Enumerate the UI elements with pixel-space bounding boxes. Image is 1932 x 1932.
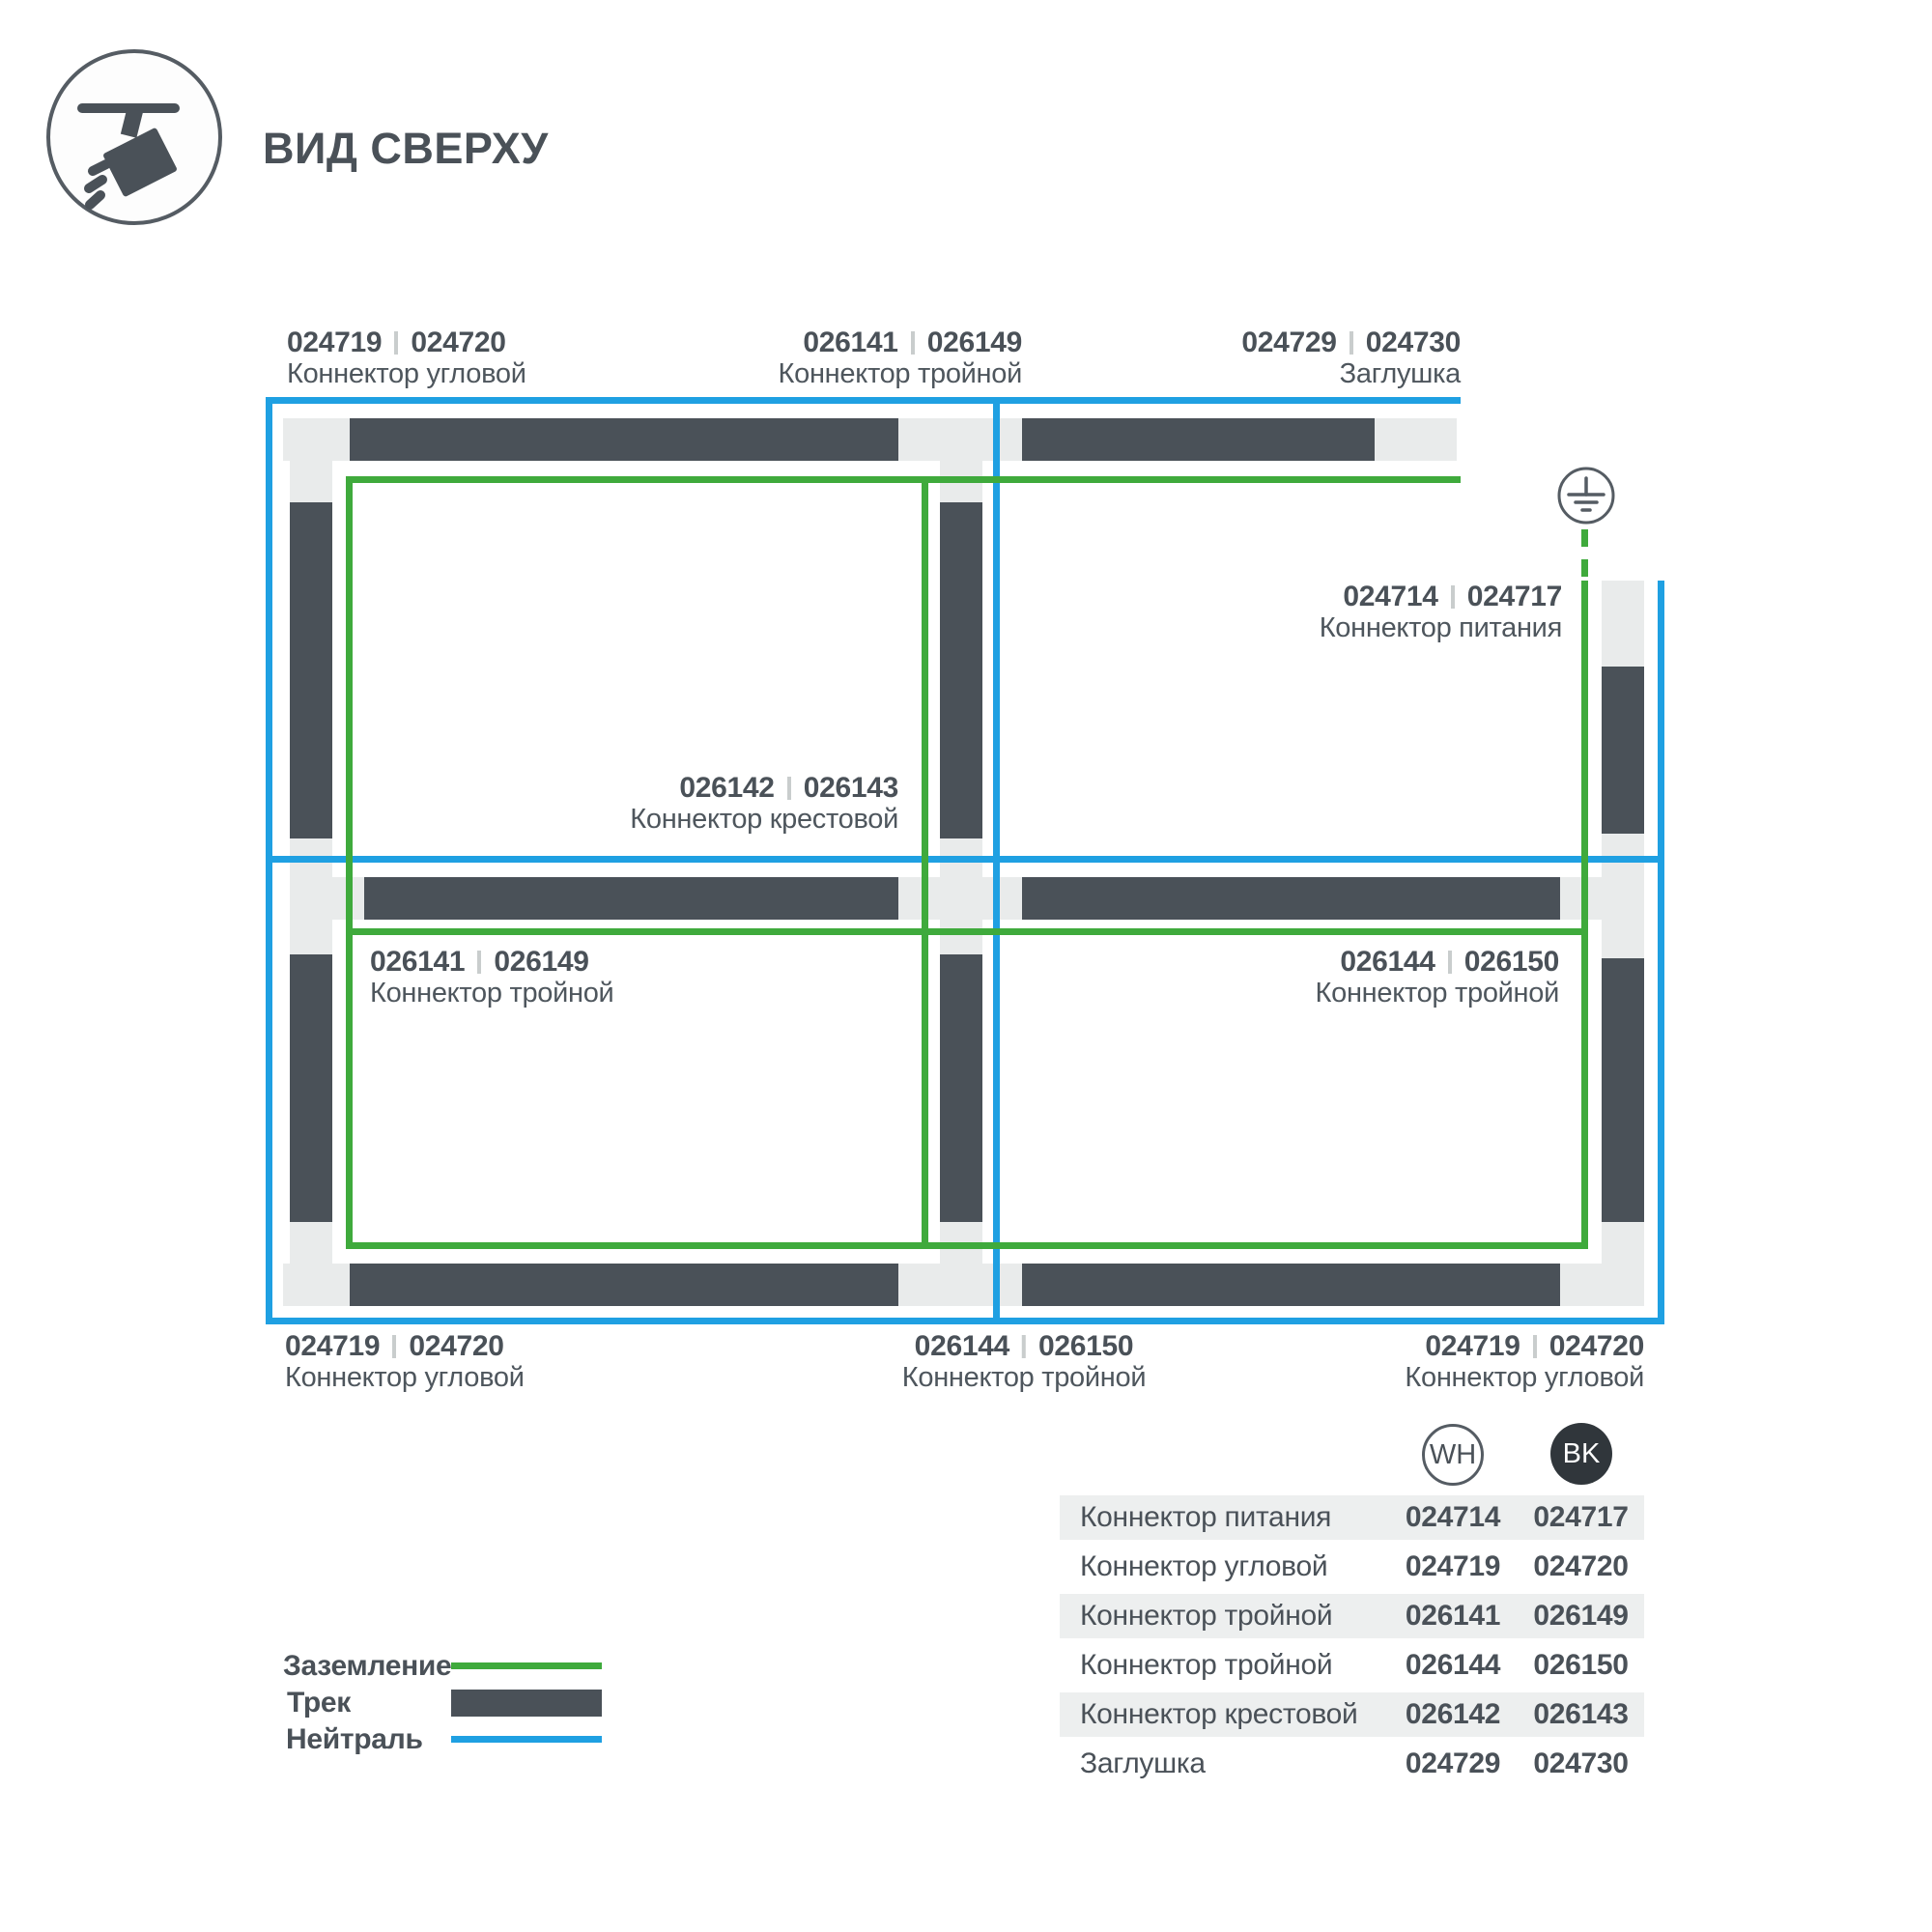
ground-line [922,476,928,1249]
page-title: ВИД СВЕРХУ [263,124,549,174]
neutral-line [993,397,1000,1324]
neutral-line [266,397,272,1324]
diagram-label-corner-top-left: 024719024720 Коннектор угловой [287,327,526,390]
table-row: Коннектор угловой024719024720 [1060,1545,1644,1589]
legend-item-neutral: Нейтраль [286,1723,423,1756]
neutral-line [266,1318,1664,1324]
diagram-label-cross: 026142026143 Коннектор крестовой [630,772,898,836]
end-cap-top-right [1375,418,1457,461]
diagram-label-tee-bottom: 026144026150 Коннектор тройной [902,1330,1146,1394]
tee-connector-left [290,877,364,920]
catalog-page: { "header": { "title": "ВИД СВЕРХУ", "ic… [0,0,1932,1932]
ground-line [346,476,353,1249]
color-badge-bk: BK [1550,1423,1612,1485]
track-spotlight-icon [50,53,218,221]
table-row: Коннектор крестовой026142026143 [1060,1692,1644,1737]
label-separator [477,951,481,974]
ground-line-dashed [1581,529,1588,582]
label-separator [394,331,398,355]
label-separator [392,1335,396,1358]
color-badge-wh: WH [1422,1424,1484,1486]
label-separator [911,331,915,355]
ground-line [346,928,1588,935]
tee-connector-right [1560,877,1644,920]
tee-connector-bottom [940,1222,982,1306]
track-top [290,418,1457,461]
neutral-line [266,397,1461,404]
ground-line-swatch [451,1662,602,1669]
label-separator [1448,951,1452,974]
label-separator [787,777,791,800]
diagram-label-corner-bottom-left: 024719024720 Коннектор угловой [285,1330,525,1394]
track-bar-swatch [451,1690,602,1717]
legend-item-track: Трек [287,1687,351,1719]
neutral-line [266,856,1664,863]
ground-line [346,476,1461,483]
label-separator [1350,331,1353,355]
label-separator [1451,585,1455,609]
header-icon-circle [46,49,222,225]
table-row: Коннектор тройной026144026150 [1060,1643,1644,1688]
diagram-label-tee-left: 026141026149 Коннектор тройной [370,946,613,1009]
table-row: Коннектор питания024714024717 [1060,1495,1644,1540]
corner-connector-bottom-left [290,1222,332,1306]
diagram-label-corner-bottom-right: 024719024720 Коннектор угловой [1405,1330,1644,1394]
corner-connector-top-left [290,418,332,502]
earth-ground-icon [1556,466,1616,530]
neutral-line [1658,581,1664,1324]
power-feed-connector [1602,581,1644,667]
label-separator [1533,1335,1537,1358]
ground-line [346,1242,1588,1249]
label-separator [1022,1335,1026,1358]
legend-item-ground: Заземление [283,1650,451,1683]
diagram-label-tee-top: 026141026149 Коннектор тройной [779,327,1022,390]
corner-connector-bottom-right [1602,1222,1644,1306]
tee-connector-top [940,418,982,502]
table-row: Коннектор тройной026141026149 [1060,1594,1644,1638]
table-row: Заглушка024729024730 [1060,1742,1644,1786]
diagram-label-endcap: 024729024730 Заглушка [1241,327,1461,390]
neutral-line-swatch [451,1736,602,1743]
diagram-label-power-feed: 024714024717 Коннектор питания [1320,581,1562,644]
diagram-label-tee-right: 026144026150 Коннектор тройной [1316,946,1559,1009]
ground-line [1581,581,1588,1249]
